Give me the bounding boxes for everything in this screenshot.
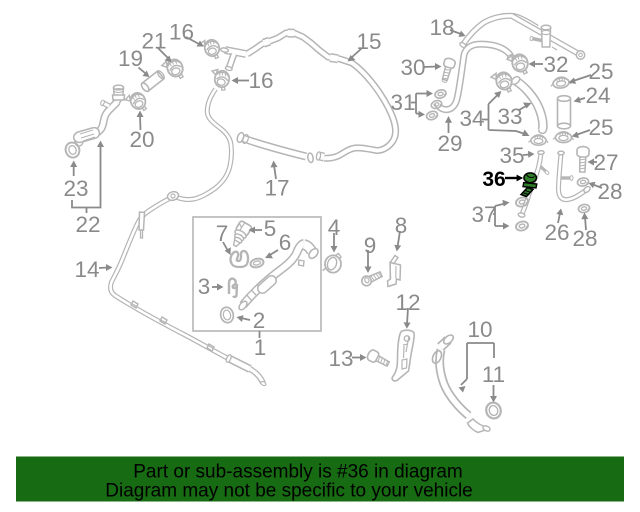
svg-text:36: 36 xyxy=(482,168,505,191)
svg-text:28: 28 xyxy=(597,179,622,204)
svg-text:10: 10 xyxy=(467,317,492,342)
svg-text:Part or sub-assembly is #36 in: Part or sub-assembly is #36 in diagram xyxy=(133,462,462,483)
svg-text:8: 8 xyxy=(395,213,408,238)
svg-text:34: 34 xyxy=(459,106,484,131)
svg-text:21: 21 xyxy=(141,29,166,54)
svg-text:24: 24 xyxy=(585,83,610,108)
svg-text:29: 29 xyxy=(437,131,462,156)
svg-text:14: 14 xyxy=(74,257,99,282)
svg-text:25: 25 xyxy=(588,59,613,84)
svg-text:25: 25 xyxy=(588,115,613,140)
svg-text:26: 26 xyxy=(544,220,569,245)
svg-text:35: 35 xyxy=(499,143,524,168)
svg-text:Diagram may not be specific to: Diagram may not be specific to your vehi… xyxy=(105,481,473,502)
svg-text:30: 30 xyxy=(400,55,425,80)
svg-text:16: 16 xyxy=(248,68,273,93)
svg-text:20: 20 xyxy=(129,127,154,152)
svg-text:33: 33 xyxy=(497,104,522,129)
svg-text:31: 31 xyxy=(390,90,415,115)
svg-text:9: 9 xyxy=(364,233,377,258)
svg-text:6: 6 xyxy=(279,230,292,255)
svg-text:22: 22 xyxy=(75,212,100,237)
svg-text:28: 28 xyxy=(572,226,597,251)
svg-text:11: 11 xyxy=(482,362,505,387)
svg-text:12: 12 xyxy=(395,290,420,315)
svg-text:17: 17 xyxy=(264,176,289,201)
svg-text:3: 3 xyxy=(198,274,211,299)
svg-text:15: 15 xyxy=(356,29,381,54)
svg-text:18: 18 xyxy=(429,15,454,40)
svg-text:5: 5 xyxy=(264,216,277,241)
svg-text:2: 2 xyxy=(253,308,266,333)
svg-text:1: 1 xyxy=(254,335,267,360)
svg-text:7: 7 xyxy=(216,221,229,246)
svg-text:23: 23 xyxy=(63,176,88,201)
svg-text:27: 27 xyxy=(593,150,618,175)
svg-text:4: 4 xyxy=(328,215,341,240)
svg-text:32: 32 xyxy=(543,52,568,77)
svg-text:19: 19 xyxy=(118,46,143,71)
svg-text:16: 16 xyxy=(169,20,194,45)
svg-text:37: 37 xyxy=(471,202,496,227)
svg-text:13: 13 xyxy=(328,346,353,371)
